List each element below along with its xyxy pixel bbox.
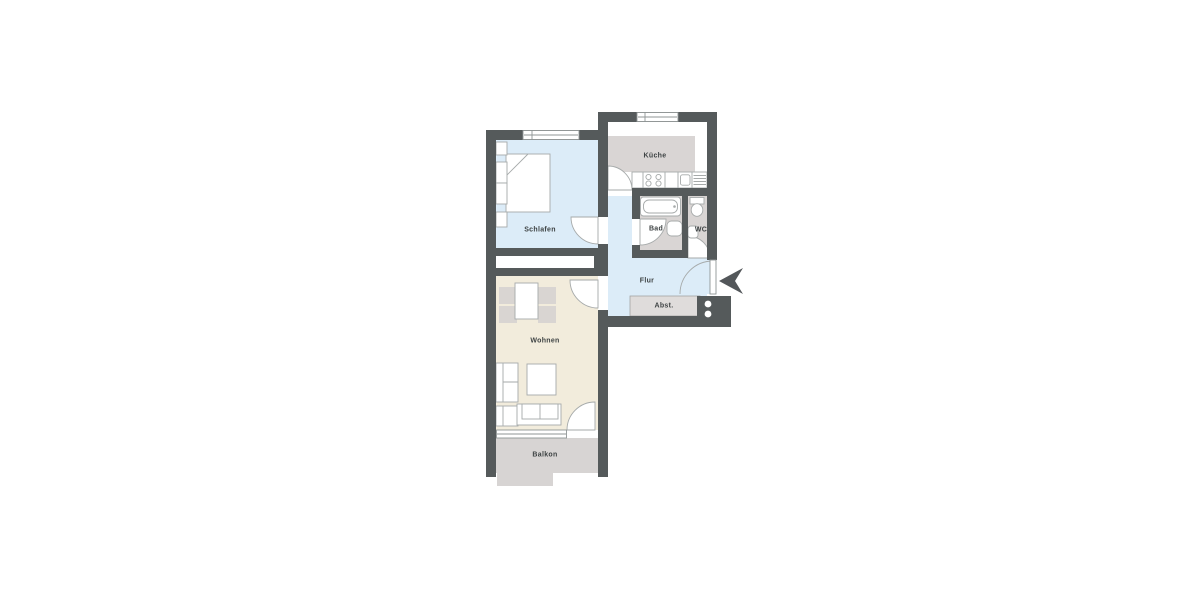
dining-chair — [538, 287, 556, 304]
room-label-wohnen: Wohnen — [530, 338, 559, 345]
wall-bath-wc-divider — [682, 196, 688, 250]
room-label-schlafen: Schlafen — [524, 227, 556, 234]
wall-hall-bottom — [598, 316, 731, 327]
wardrobe-1 — [496, 142, 507, 155]
wall-bath-left-upper — [632, 196, 640, 219]
room-label-wc: WC — [695, 227, 707, 234]
room-label-balkon: Balkon — [532, 452, 557, 459]
room-label-kueche: Küche — [644, 153, 667, 160]
stove-burner — [656, 181, 661, 186]
wall-center-lower — [598, 310, 608, 477]
stove-burner — [656, 174, 661, 179]
dining-chair — [499, 306, 517, 323]
toilet-tank — [690, 198, 704, 205]
toilet-bowl — [691, 204, 703, 217]
wall-bath-bottom — [632, 250, 688, 258]
bath-door-threshold — [632, 219, 640, 245]
bed — [506, 154, 550, 212]
wardrobe-3 — [496, 183, 507, 204]
wall-shaft-block — [697, 296, 731, 316]
stove-burner — [646, 181, 651, 186]
dining-chair — [538, 306, 556, 323]
wall-center-upper — [598, 112, 608, 217]
room-label-flur: Flur — [640, 278, 654, 285]
wall-center-mid — [598, 244, 608, 276]
bathtub-inner — [644, 200, 678, 213]
balcony-floor-step — [497, 473, 553, 486]
wall-bath-left-lower — [632, 245, 640, 250]
bath-sink — [667, 221, 682, 236]
entrance-arrow-icon — [719, 268, 743, 294]
room-label-bad: Bad — [649, 226, 663, 233]
wardrobe-4 — [496, 212, 507, 227]
shaft-dot — [705, 311, 712, 318]
hall-floor-arm — [608, 196, 632, 316]
wall-left — [486, 130, 496, 477]
shaft-dot — [705, 301, 712, 308]
wall-right — [707, 112, 717, 260]
stove-burner — [646, 174, 651, 179]
entrance-door-leaf — [710, 260, 716, 294]
dining-table — [515, 283, 538, 319]
wardrobe-2 — [496, 162, 507, 183]
room-label-abst: Abst. — [655, 303, 674, 310]
bathtub-drain — [673, 205, 676, 208]
coffee-table — [527, 364, 556, 395]
wall-divider-lower — [486, 268, 608, 276]
armchair — [496, 406, 518, 426]
dining-chair — [499, 287, 517, 304]
floorplan-canvas: Schlafen Küche Bad WC Flur Abst. Wohnen … — [0, 0, 1200, 600]
floorplan-drawing — [0, 0, 1200, 600]
wall-kitchen-bottom — [632, 188, 717, 196]
sofa-left — [496, 363, 518, 402]
bedroom-door-threshold — [598, 217, 608, 244]
kitchen-sink — [681, 175, 691, 185]
living-door-threshold — [598, 276, 608, 310]
wall-divider-upper — [486, 248, 608, 256]
